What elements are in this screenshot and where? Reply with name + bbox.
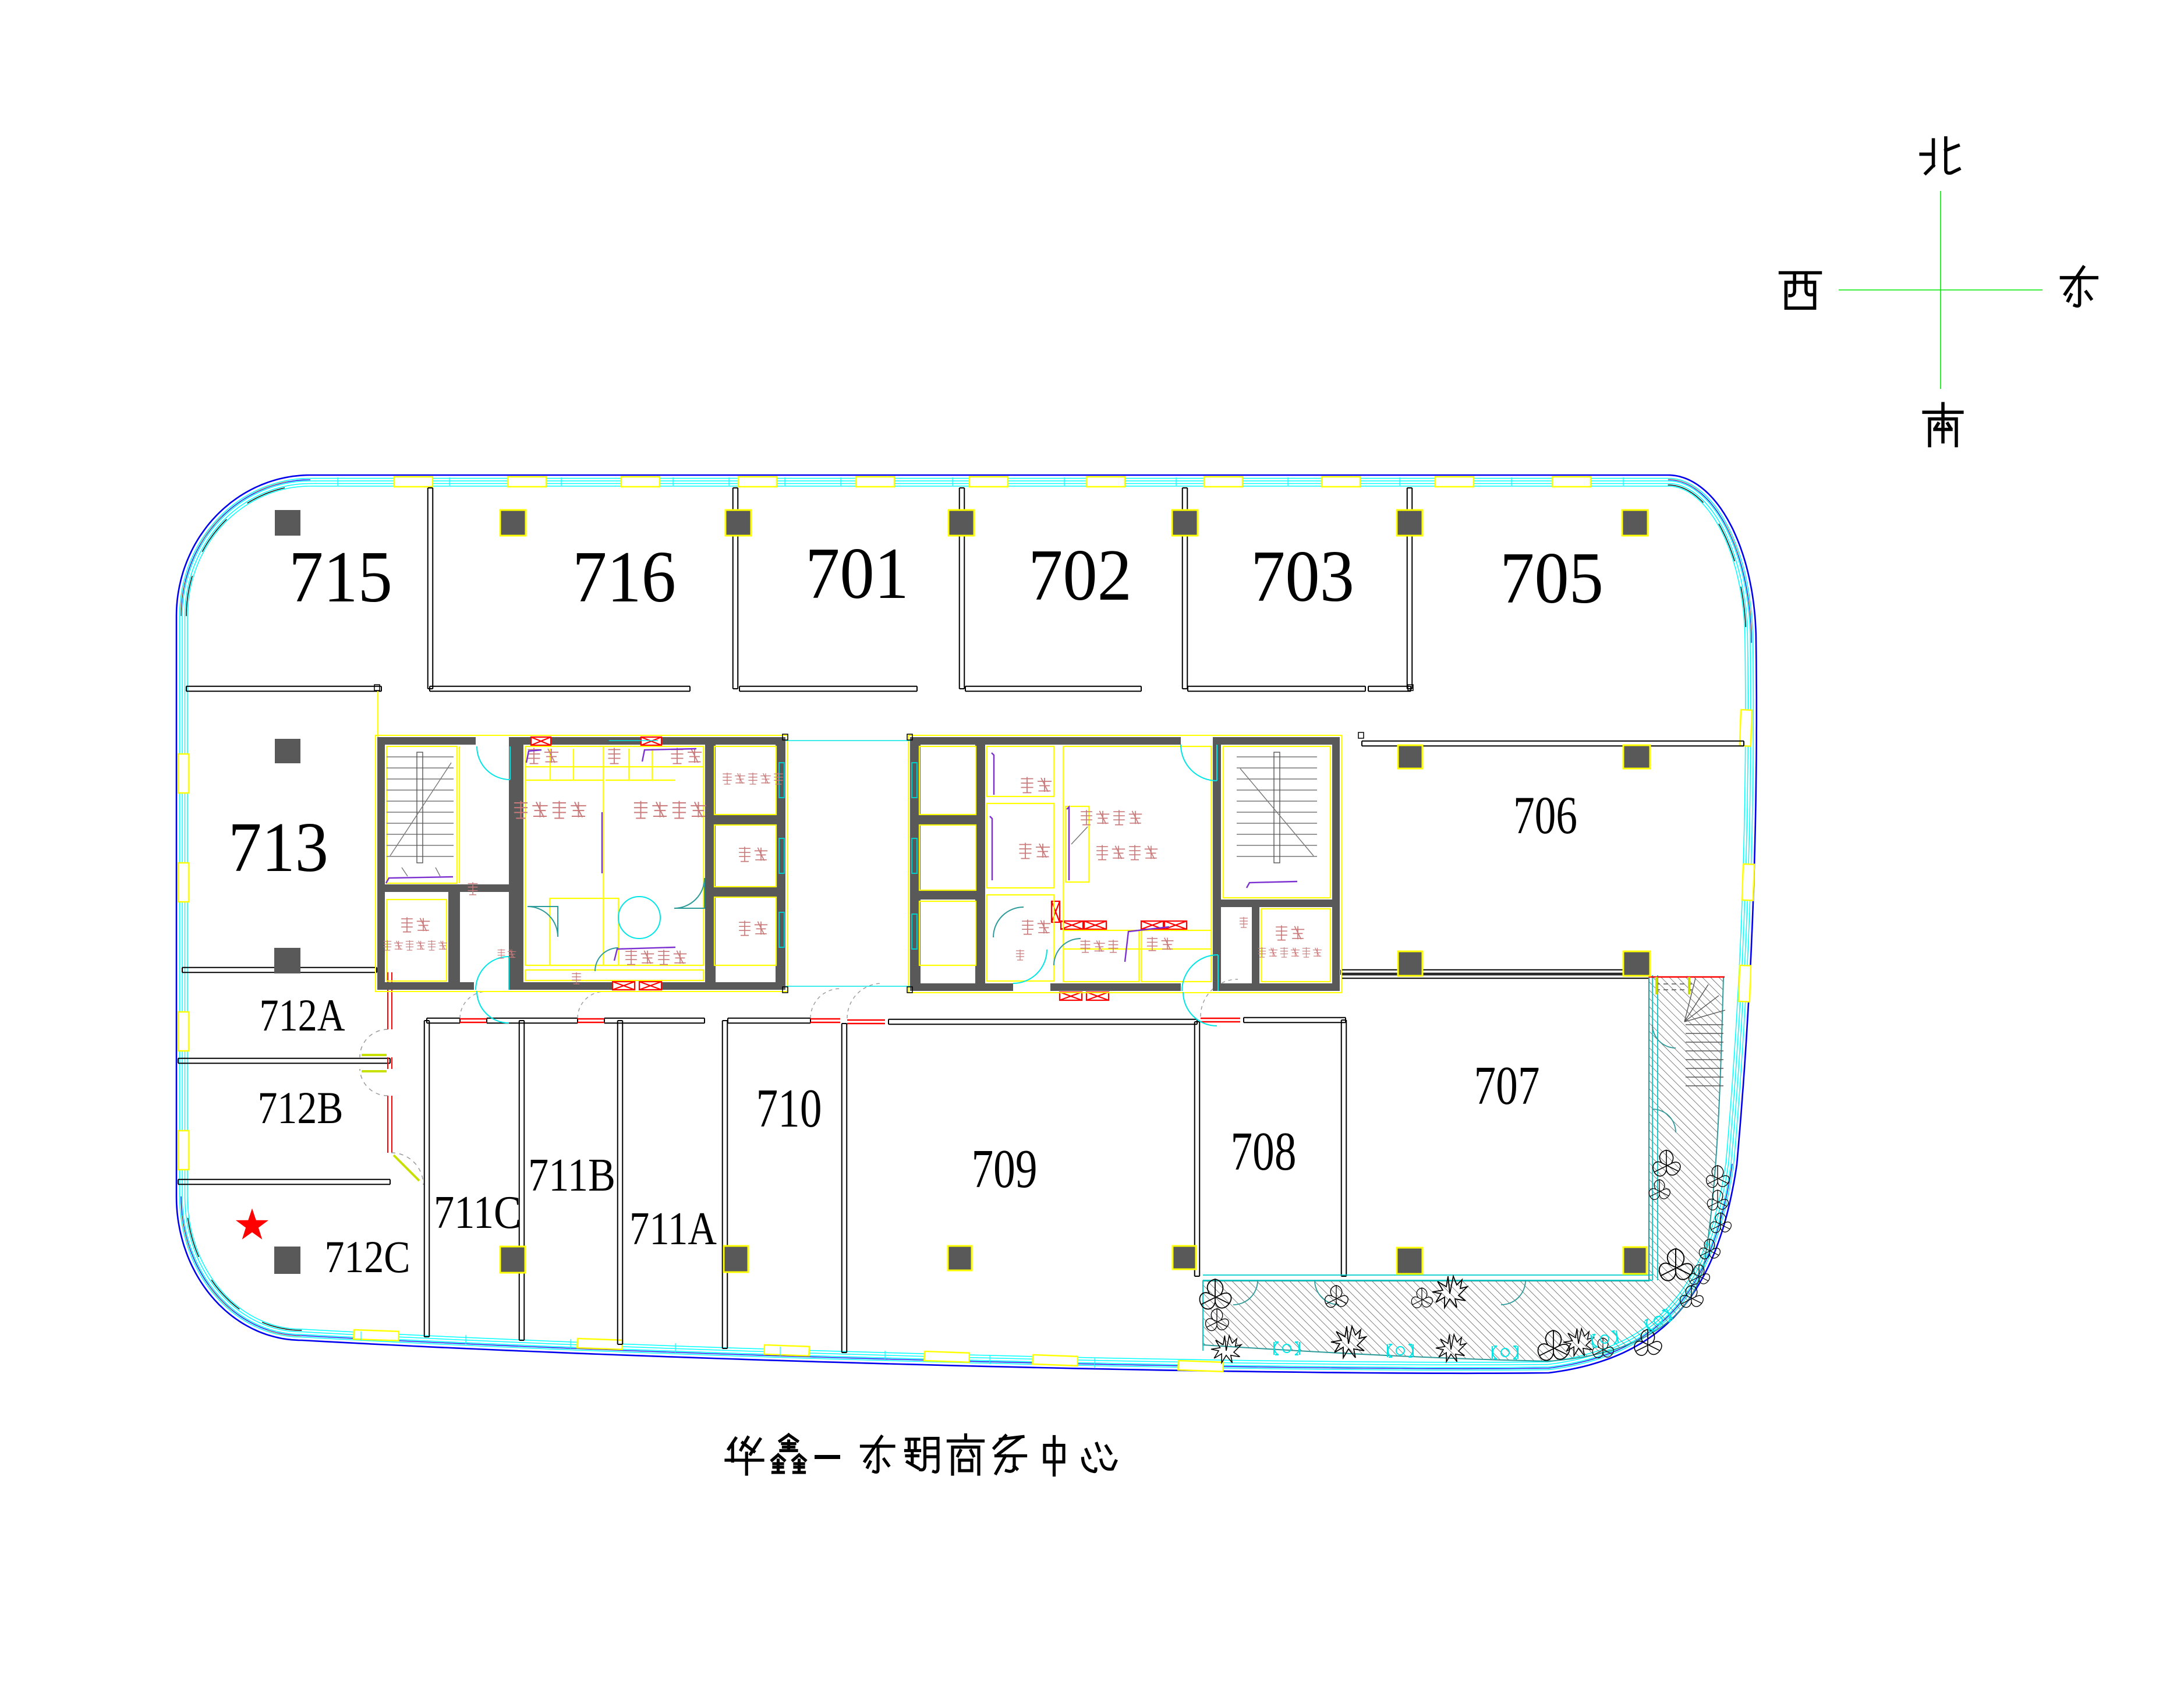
svg-text:711C: 711C [434,1187,521,1238]
svg-text:711B: 711B [528,1150,615,1201]
svg-text:708: 708 [1231,1121,1297,1182]
svg-text:709: 709 [972,1139,1038,1199]
svg-text:712B: 712B [258,1082,344,1133]
svg-text:713: 713 [228,808,328,887]
svg-text:701: 701 [805,533,909,614]
svg-text:712C: 712C [325,1231,410,1282]
svg-text:702: 702 [1028,535,1132,616]
svg-text:706: 706 [1513,785,1577,845]
svg-text:707: 707 [1474,1056,1540,1116]
svg-text:715: 715 [289,537,392,618]
svg-text:710: 710 [756,1078,822,1139]
svg-text:711A: 711A [629,1203,717,1255]
svg-text:712A: 712A [260,990,345,1040]
svg-text:716: 716 [572,537,676,618]
svg-text:703: 703 [1251,536,1354,617]
svg-text:705: 705 [1500,538,1604,619]
